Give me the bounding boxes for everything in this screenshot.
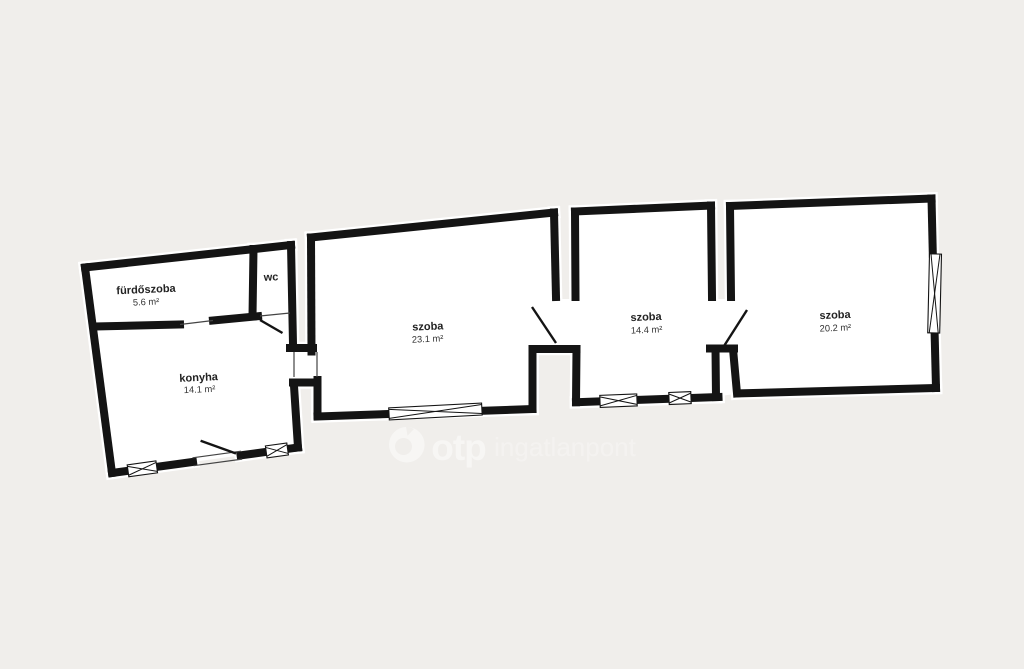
svg-text:wc: wc: [262, 271, 278, 284]
svg-text:14.1 m²: 14.1 m²: [184, 384, 216, 395]
svg-text:5.6 m²: 5.6 m²: [133, 296, 160, 307]
svg-text:23.1 m²: 23.1 m²: [412, 333, 444, 344]
svg-text:szoba: szoba: [630, 311, 663, 324]
svg-text:14.4 m²: 14.4 m²: [631, 324, 663, 335]
svg-text:otp: otp: [431, 427, 486, 468]
svg-text:szoba: szoba: [819, 309, 852, 322]
svg-text:szoba: szoba: [412, 320, 445, 333]
svg-text:konyha: konyha: [179, 371, 219, 385]
svg-text:ingatlanpont: ingatlanpont: [494, 432, 636, 462]
svg-text:20.2 m²: 20.2 m²: [819, 322, 851, 333]
